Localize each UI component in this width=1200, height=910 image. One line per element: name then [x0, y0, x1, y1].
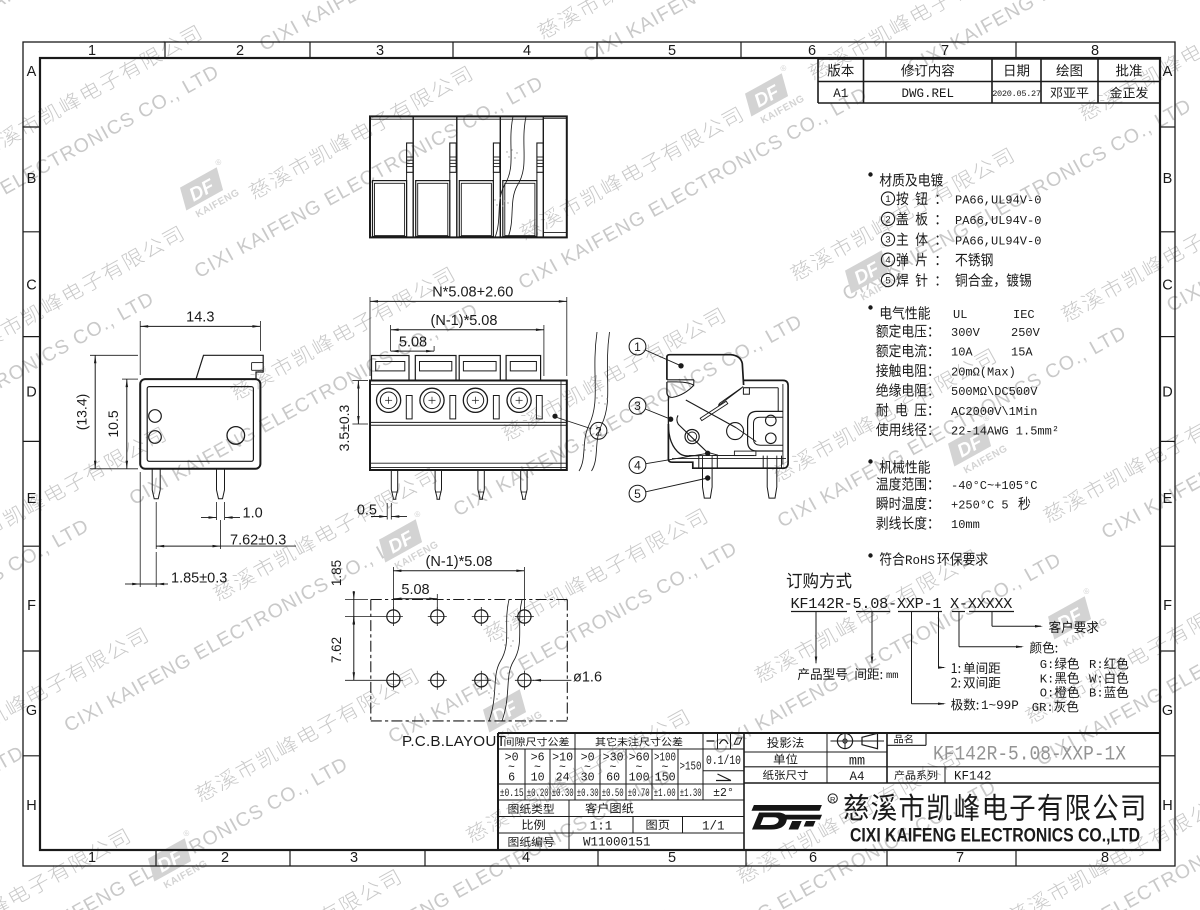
svg-text:K:: K: [1040, 672, 1055, 686]
svg-text:IEC: IEC [1013, 308, 1035, 322]
svg-text:CIXI KAIFENG ELECTRONICS CO.,: CIXI KAIFENG ELECTRONICS CO., LTD [450, 310, 807, 521]
svg-text:30: 30 [581, 772, 595, 785]
svg-text:B: B [1163, 171, 1173, 187]
svg-text:±0.70: ±0.70 [628, 788, 650, 800]
svg-text:±0.30: ±0.30 [577, 788, 599, 800]
svg-text:15A: 15A [1011, 346, 1033, 360]
svg-text:A1: A1 [833, 87, 848, 101]
svg-text:1: 1 [88, 43, 96, 59]
svg-text:8: 8 [1091, 43, 1099, 59]
svg-text:CIXI KAIFENG ELECTRONICS CO.,: CIXI KAIFENG ELECTRONICS CO., LTD [515, 83, 872, 294]
svg-text:E: E [27, 491, 37, 507]
svg-text:2020.05.27: 2020.05.27 [992, 89, 1041, 99]
svg-text:±2°: ±2° [713, 787, 734, 800]
svg-text:ø1.6: ø1.6 [573, 670, 602, 686]
svg-text:G: G [26, 703, 37, 719]
svg-text:1/1: 1/1 [702, 820, 725, 834]
svg-text:5: 5 [668, 43, 676, 59]
svg-text:5.08: 5.08 [401, 582, 429, 598]
svg-text:CIXI KAIFENG ELECTRONICS CO.,: CIXI KAIFENG ELECTRONICS CO., LTD [256, 0, 613, 56]
svg-text:7.62±0.3: 7.62±0.3 [230, 533, 286, 549]
svg-text:1~99P: 1~99P [981, 699, 1019, 713]
svg-text:DWG.REL: DWG.REL [902, 87, 955, 101]
svg-text:250V: 250V [1011, 326, 1041, 340]
svg-text:300V: 300V [951, 326, 981, 340]
svg-text:H: H [26, 798, 36, 814]
svg-text:A: A [1163, 64, 1173, 80]
svg-text:4: 4 [885, 255, 890, 266]
svg-text:6: 6 [809, 850, 817, 866]
svg-text:2: 2 [595, 424, 602, 438]
svg-text:PA66,UL94V-0: PA66,UL94V-0 [955, 214, 1041, 228]
svg-text:4: 4 [523, 43, 531, 59]
svg-text:+250°C 5: +250°C 5 [951, 499, 1009, 513]
svg-text:D: D [1162, 385, 1172, 401]
svg-text:C: C [26, 278, 36, 294]
svg-text:5: 5 [885, 276, 890, 287]
svg-text:>150: >150 [680, 761, 702, 774]
svg-text:H: H [1162, 798, 1172, 814]
svg-text:22-14AWG 1.5mm²: 22-14AWG 1.5mm² [951, 425, 1059, 439]
svg-text:CIXI KAIFENG ELECTRONICS CO.,: CIXI KAIFENG ELECTRONICS CO., LTD [1098, 333, 1200, 544]
svg-text:14.3: 14.3 [186, 310, 214, 326]
svg-text:1.0: 1.0 [243, 506, 263, 522]
svg-text:1: 1 [88, 850, 96, 866]
svg-text:8: 8 [1101, 850, 1109, 866]
svg-text:CIXI KAIFENG ELECTRONICS CO.,: CIXI KAIFENG ELECTRONICS CO., LTD [0, 742, 28, 910]
svg-text:±1.30: ±1.30 [680, 788, 702, 800]
svg-text:-40°C~+105°C: -40°C~+105°C [951, 479, 1037, 493]
svg-text:3.5±0.3: 3.5±0.3 [336, 404, 352, 451]
svg-text:A4: A4 [849, 770, 864, 784]
svg-text:5: 5 [634, 487, 641, 501]
svg-text:10.5: 10.5 [105, 410, 121, 437]
svg-text:O:: O: [1040, 687, 1055, 701]
svg-text:6: 6 [508, 772, 515, 785]
svg-text:CIXI KAIFENG ELECTRONICS CO.,: CIXI KAIFENG ELECTRONICS CO., LTD [0, 0, 288, 45]
svg-text:W:: W: [1089, 672, 1104, 686]
svg-text:PA66,UL94V-0: PA66,UL94V-0 [955, 234, 1041, 248]
svg-text:KF142R-5.08-XXP-1 X-XXXXX: KF142R-5.08-XXP-1 X-XXXXX [791, 595, 1013, 613]
svg-text:®: ® [1082, 586, 1092, 597]
svg-text:±1.00: ±1.00 [654, 788, 676, 800]
svg-text:1: 1 [885, 194, 890, 205]
svg-text:10: 10 [531, 772, 545, 785]
svg-text:D: D [26, 385, 36, 401]
svg-text:UL: UL [953, 308, 967, 322]
svg-text:W11000151: W11000151 [583, 836, 651, 850]
svg-text:1.85: 1.85 [329, 560, 344, 586]
svg-text:2: 2 [885, 214, 890, 225]
svg-text:5.08: 5.08 [399, 335, 427, 351]
svg-text:7.62: 7.62 [329, 637, 344, 663]
svg-text:GR:: GR: [1032, 701, 1054, 715]
svg-text:(N-1)*5.08: (N-1)*5.08 [426, 554, 493, 570]
svg-text:R: R [830, 795, 836, 804]
svg-text:mm: mm [849, 755, 865, 770]
svg-text:F: F [1163, 598, 1172, 614]
svg-text:10mm: 10mm [951, 518, 980, 532]
svg-text:(N-1)*5.08: (N-1)*5.08 [431, 313, 498, 329]
svg-text:10A: 10A [951, 346, 973, 360]
svg-text:KF142R-5.08-XXP-1X: KF142R-5.08-XXP-1X [933, 744, 1126, 767]
svg-text:B: B [27, 171, 37, 187]
svg-text:2: 2 [236, 43, 244, 59]
svg-text:P.C.B.LAYOUT: P.C.B.LAYOUT [402, 733, 506, 750]
svg-text:0.5: 0.5 [357, 503, 377, 519]
svg-text:7: 7 [941, 43, 949, 59]
svg-text:CIXI KAIFENG ELECTRONICS CO.,: CIXI KAIFENG ELECTRONICS CO., LTD [61, 526, 418, 737]
svg-text:60: 60 [606, 772, 620, 785]
svg-text:E: E [1163, 491, 1173, 507]
svg-text:20mΩ(Max): 20mΩ(Max) [951, 365, 1016, 379]
svg-text:CIXI KAIFENG ELECTRONICS CO.,L: CIXI KAIFENG ELECTRONICS CO.,LTD [850, 826, 1140, 847]
svg-text:500MΩ\DC500V: 500MΩ\DC500V [951, 385, 1038, 399]
svg-text:6: 6 [808, 43, 816, 59]
svg-text:2: 2 [221, 850, 229, 866]
svg-text:4: 4 [634, 459, 641, 473]
svg-text:100: 100 [629, 772, 650, 785]
svg-text:±0.15: ±0.15 [500, 788, 524, 800]
svg-text:5: 5 [668, 850, 676, 866]
svg-text:CIXI KAIFENG ELECTRONICS CO.,: CIXI KAIFENG ELECTRONICS CO., LTD [0, 288, 158, 499]
svg-text:RoHS: RoHS [905, 554, 935, 568]
svg-text:C: C [1162, 278, 1172, 294]
svg-text:R:: R: [1089, 658, 1104, 672]
svg-text:4: 4 [522, 850, 530, 866]
svg-text:±0.50: ±0.50 [602, 788, 624, 800]
svg-text:150: 150 [655, 772, 676, 785]
svg-text:KF142: KF142 [954, 770, 992, 784]
svg-text:1.85±0.3: 1.85±0.3 [171, 571, 227, 587]
svg-text:AC2000V\1Min: AC2000V\1Min [951, 405, 1037, 419]
svg-text:0.1/10: 0.1/10 [706, 754, 741, 768]
svg-text:N*5.08+2.60: N*5.08+2.60 [432, 285, 513, 301]
svg-text:PA66,UL94V-0: PA66,UL94V-0 [955, 194, 1041, 208]
svg-text:3: 3 [885, 235, 890, 246]
svg-text:B:: B: [1089, 687, 1104, 701]
svg-text:G:: G: [1040, 658, 1055, 672]
svg-text:3: 3 [634, 399, 641, 413]
svg-text:mm: mm [886, 670, 899, 682]
svg-text:24: 24 [556, 772, 570, 785]
svg-text:CIXI KAIFENG ELECTRONICS CO.,: CIXI KAIFENG ELECTRONICS CO., LTD [709, 548, 1066, 759]
svg-text:®: ® [214, 157, 224, 168]
svg-text:F: F [27, 598, 36, 614]
svg-text:(13.4): (13.4) [74, 394, 90, 431]
svg-text:®: ® [779, 63, 789, 74]
svg-text:±0.30: ±0.30 [552, 788, 574, 800]
svg-text:1: 1 [634, 340, 641, 354]
svg-text:3: 3 [350, 850, 358, 866]
svg-text:A: A [27, 64, 37, 80]
svg-text:CIXI KAIFENG ELECTRONICS CO.,: CIXI KAIFENG ELECTRONICS CO., LTD [904, 0, 1200, 78]
svg-text:3: 3 [376, 43, 384, 59]
svg-text:G: G [1162, 703, 1173, 719]
svg-text:±0.20: ±0.20 [527, 788, 549, 800]
svg-text:CIXI KAIFENG ELECTRONICS CO.,: CIXI KAIFENG ELECTRONICS CO., LTD [0, 60, 223, 271]
svg-text:®: ® [413, 509, 423, 520]
svg-text:7: 7 [956, 850, 964, 866]
svg-text:1:1: 1:1 [590, 820, 613, 834]
